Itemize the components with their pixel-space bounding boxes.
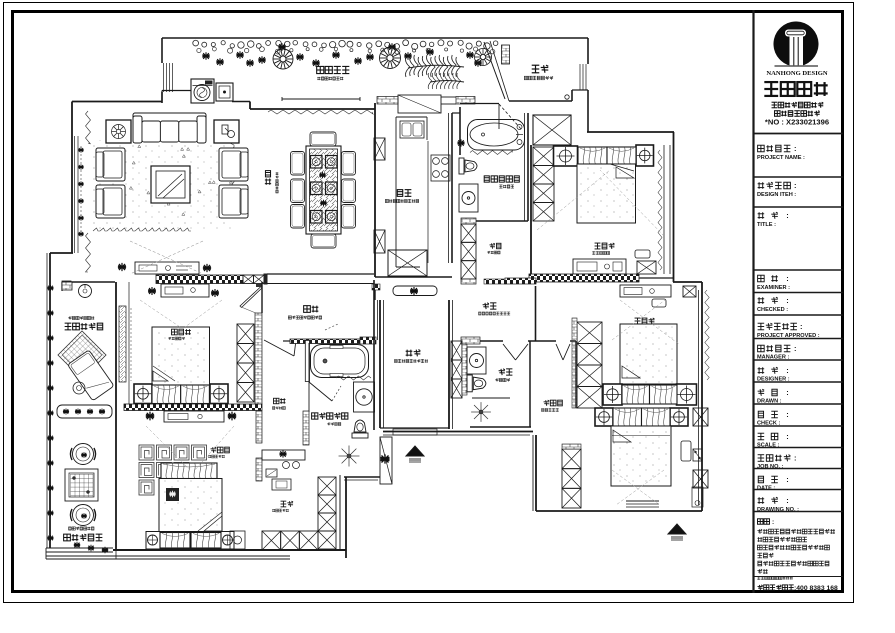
svg-text:CHECKED :: CHECKED : (757, 307, 788, 313)
svg-text:DESIGN ITEH :: DESIGN ITEH : (757, 192, 796, 198)
svg-text::400 8383 168: :400 8383 168 (794, 585, 838, 592)
svg-text:DATE :: DATE : (757, 486, 775, 492)
svg-text::: : (800, 322, 803, 331)
svg-text::: : (794, 144, 797, 153)
svg-text::: : (786, 388, 789, 397)
svg-text:*NO : X233021396: *NO : X233021396 (765, 118, 829, 127)
svg-text::: : (794, 454, 797, 463)
svg-text::: : (786, 366, 789, 375)
svg-text::: : (786, 432, 789, 441)
svg-text::: : (786, 211, 789, 220)
svg-text:NANHONG DESIGN: NANHONG DESIGN (766, 70, 828, 77)
svg-text::: : (786, 496, 789, 505)
svg-text:PROJECT NAME :: PROJECT NAME : (757, 155, 805, 161)
svg-text:EXAMINER :: EXAMINER : (757, 285, 790, 291)
svg-text::: : (786, 475, 789, 484)
svg-text::: : (794, 344, 797, 353)
svg-text::: : (786, 274, 789, 283)
svg-text:TITLE :: TITLE : (757, 222, 776, 228)
svg-text::: : (786, 410, 789, 419)
svg-text::: : (786, 296, 789, 305)
svg-text::: : (794, 181, 797, 190)
svg-text::: : (772, 519, 774, 526)
